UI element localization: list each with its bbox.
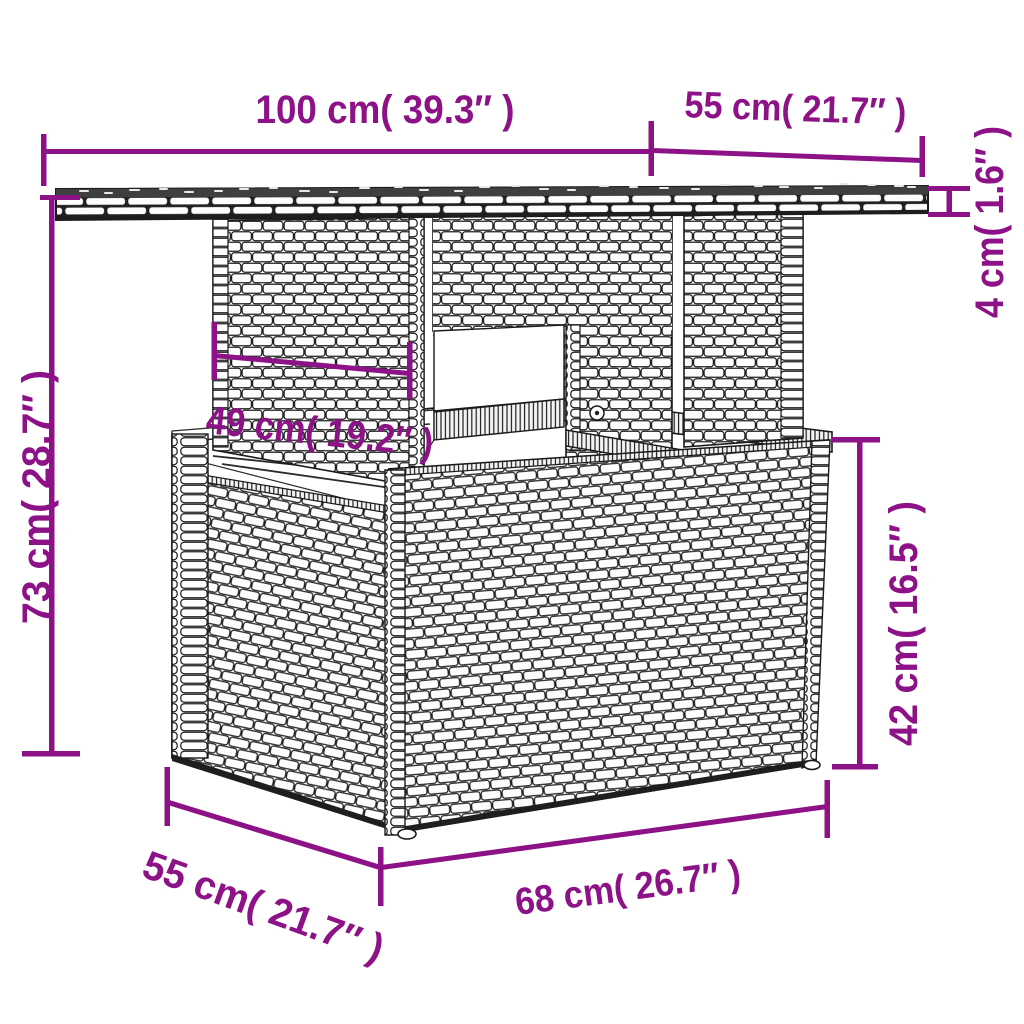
svg-text:55 cm( 21.7″ ): 55 cm( 21.7″ ): [684, 83, 907, 133]
svg-text:100 cm( 39.3″ ): 100 cm( 39.3″ ): [256, 88, 515, 132]
svg-text:4 cm( 1.6″ ): 4 cm( 1.6″ ): [968, 126, 1012, 318]
svg-text:73 cm( 28.7″ ): 73 cm( 28.7″ ): [15, 370, 59, 624]
svg-text:42 cm( 16.5″ ): 42 cm( 16.5″ ): [882, 501, 926, 746]
